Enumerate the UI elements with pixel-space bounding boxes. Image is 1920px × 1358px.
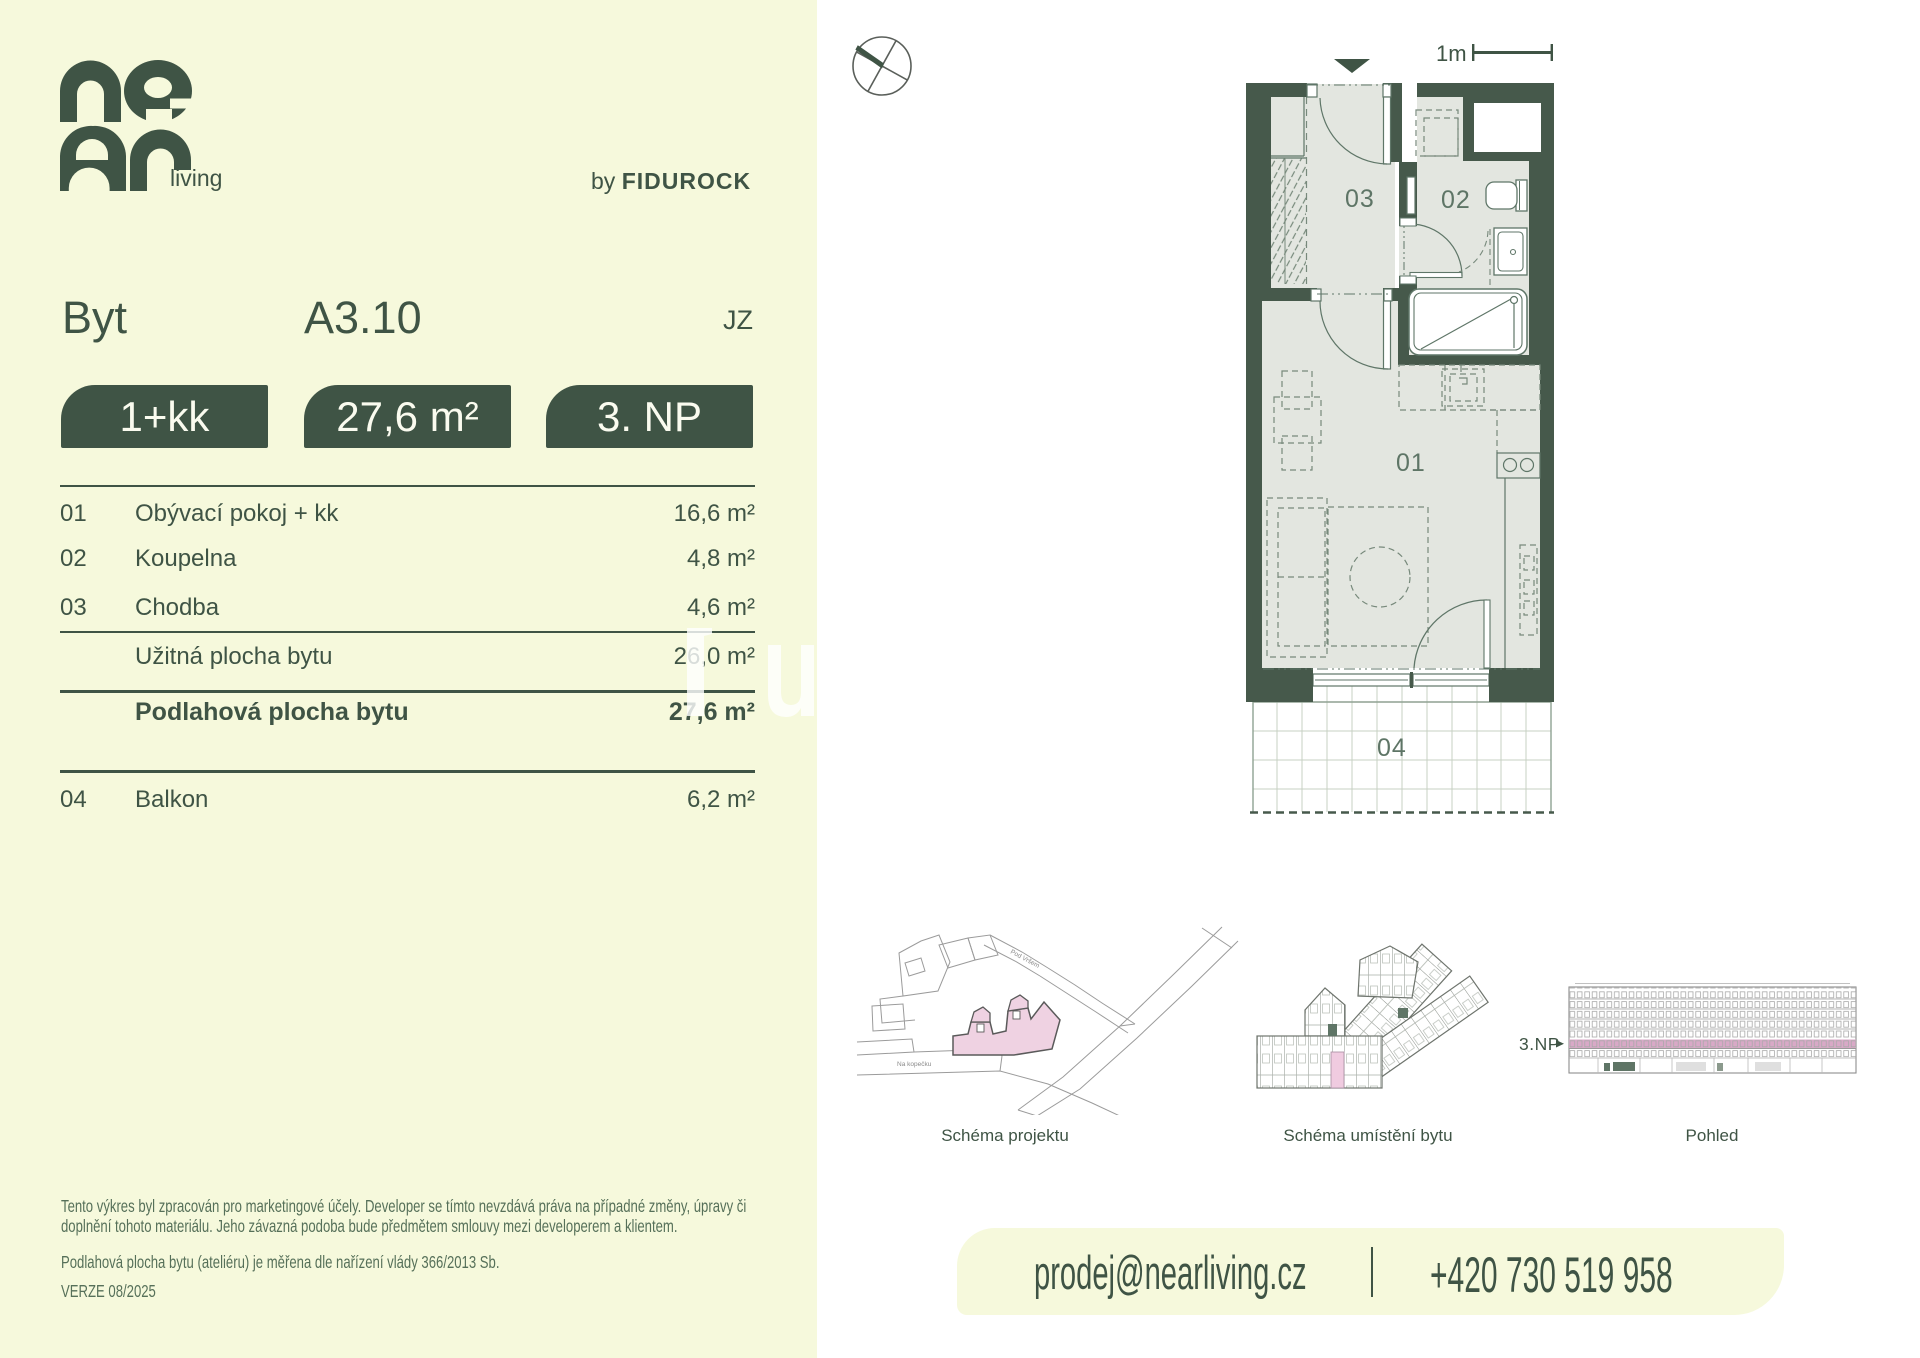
svg-text:04: 04	[1377, 734, 1407, 762]
svg-text:02: 02	[1441, 186, 1471, 214]
svg-text:1m: 1m	[1436, 41, 1467, 66]
svg-text:03: 03	[1345, 185, 1375, 213]
svg-text:3.NP: 3.NP	[1519, 1034, 1560, 1054]
svg-text:01: 01	[1396, 449, 1426, 477]
svg-text:Na kopečku: Na kopečku	[897, 1061, 932, 1068]
